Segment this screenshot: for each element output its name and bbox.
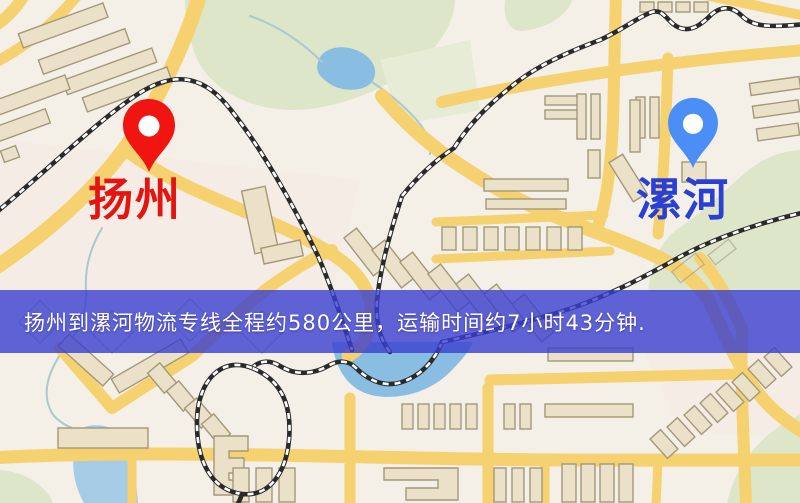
destination-city-label: 漯河	[636, 177, 730, 222]
map-canvas[interactable]	[0, 0, 800, 503]
origin-city-label: 扬州	[88, 177, 182, 222]
map-screenshot: 扬州 漯河 扬州到漯河物流专线全程约580公里，运输时间约7小时43分钟.	[0, 0, 800, 503]
route-info-banner: 扬州到漯河物流专线全程约580公里，运输时间约7小时43分钟.	[0, 290, 800, 353]
destination-pin[interactable]	[668, 98, 718, 168]
route-info-text: 扬州到漯河物流专线全程约580公里，运输时间约7小时43分钟.	[24, 307, 646, 337]
